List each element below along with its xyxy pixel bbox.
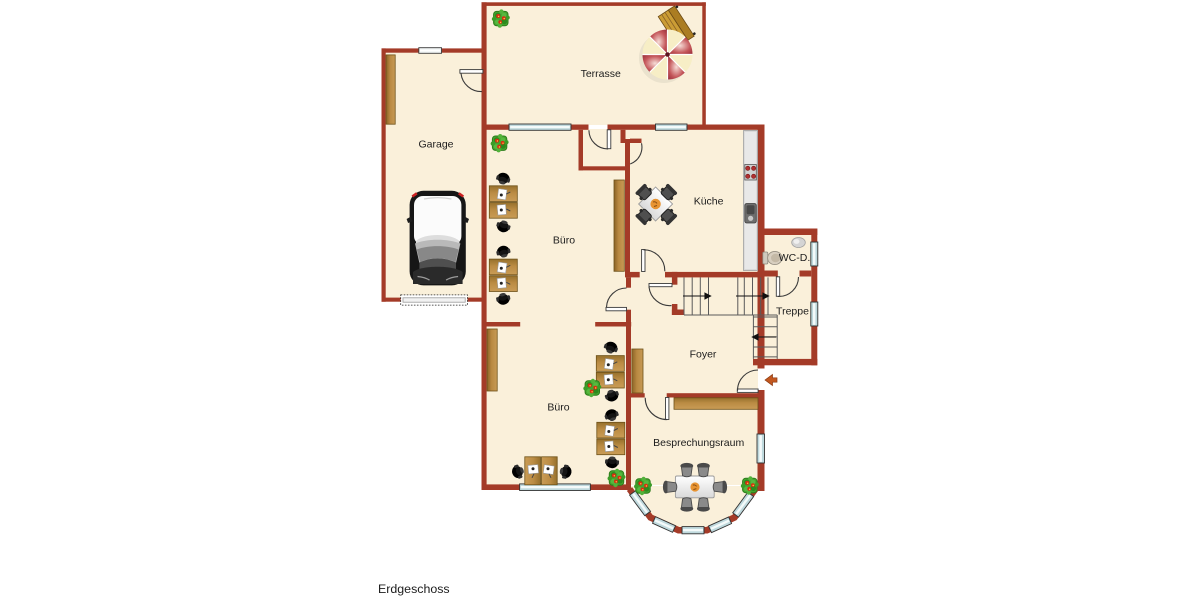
svg-text:Küche: Küche	[694, 196, 724, 208]
svg-text:Treppe: Treppe	[776, 306, 809, 318]
svg-text:Garage: Garage	[418, 139, 453, 151]
svg-text:Foyer: Foyer	[690, 349, 717, 361]
svg-text:Besprechungsraum: Besprechungsraum	[653, 437, 744, 449]
svg-text:WC-D.: WC-D.	[779, 252, 811, 264]
svg-text:Büro: Büro	[547, 402, 569, 414]
svg-text:Terrasse: Terrasse	[581, 68, 621, 80]
svg-text:Erdgeschoss: Erdgeschoss	[378, 582, 450, 596]
svg-text:Büro: Büro	[553, 235, 575, 247]
